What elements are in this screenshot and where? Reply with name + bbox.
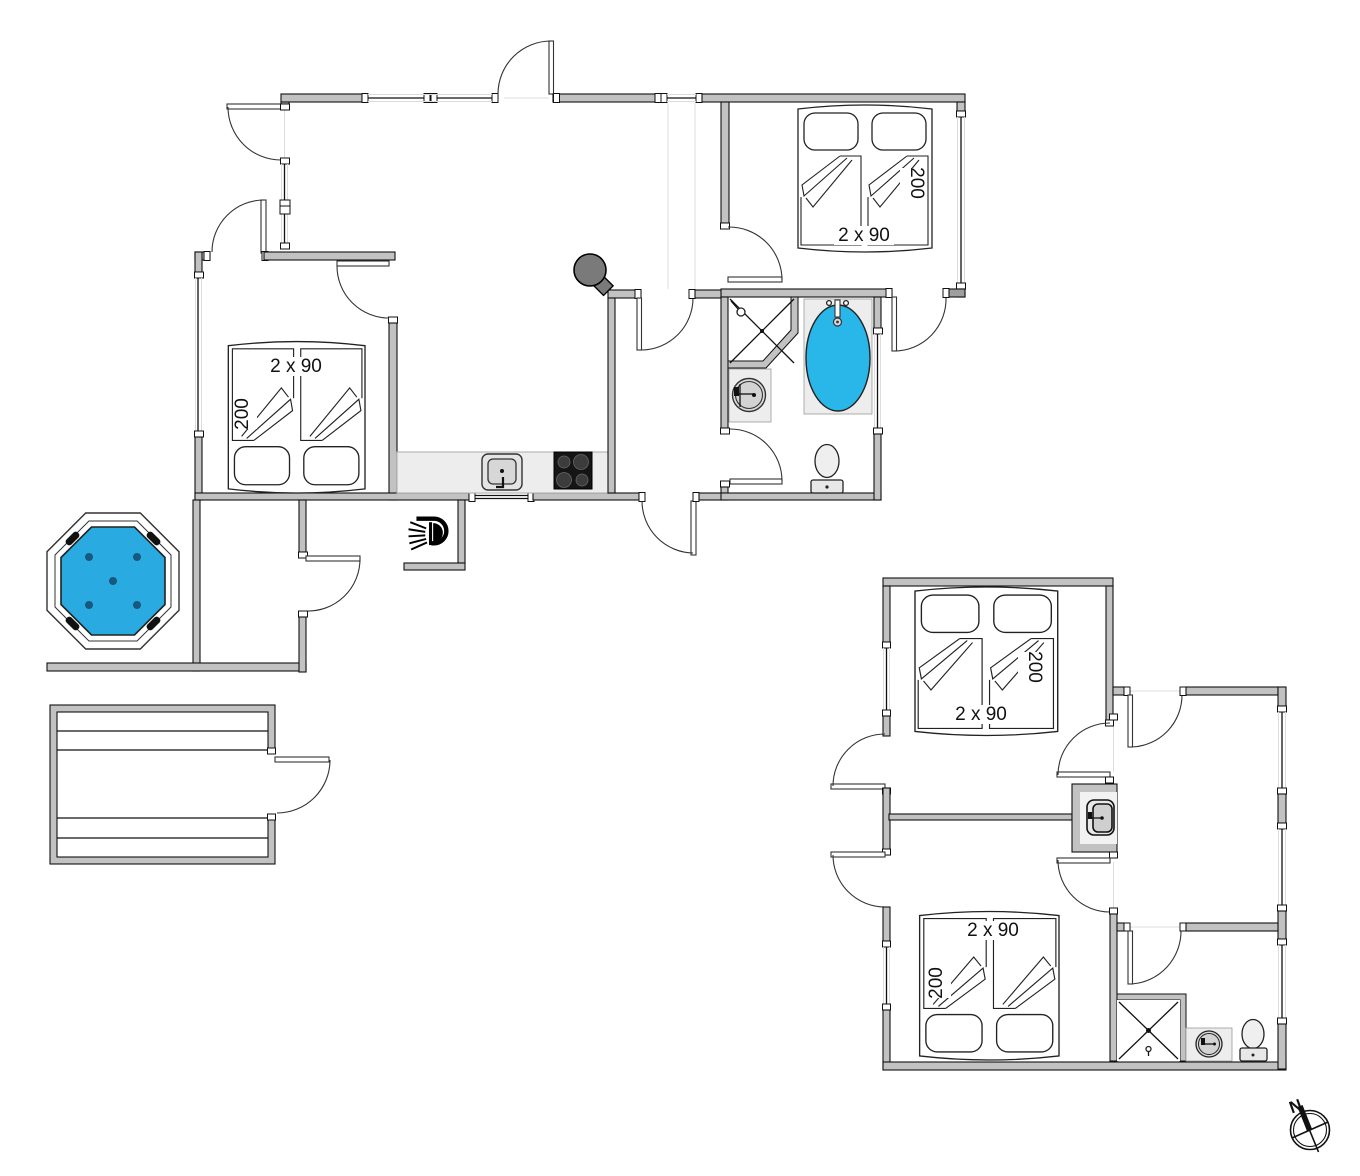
svg-text:2 x 90: 2 x 90	[838, 225, 890, 246]
svg-text:2 x 90: 2 x 90	[270, 356, 322, 377]
svg-text:200: 200	[1024, 651, 1045, 683]
svg-text:200: 200	[232, 398, 253, 430]
svg-text:200: 200	[906, 167, 927, 199]
svg-text:2 x 90: 2 x 90	[967, 920, 1019, 941]
svg-text:2 x 90: 2 x 90	[955, 704, 1007, 725]
svg-text:200: 200	[926, 967, 947, 999]
